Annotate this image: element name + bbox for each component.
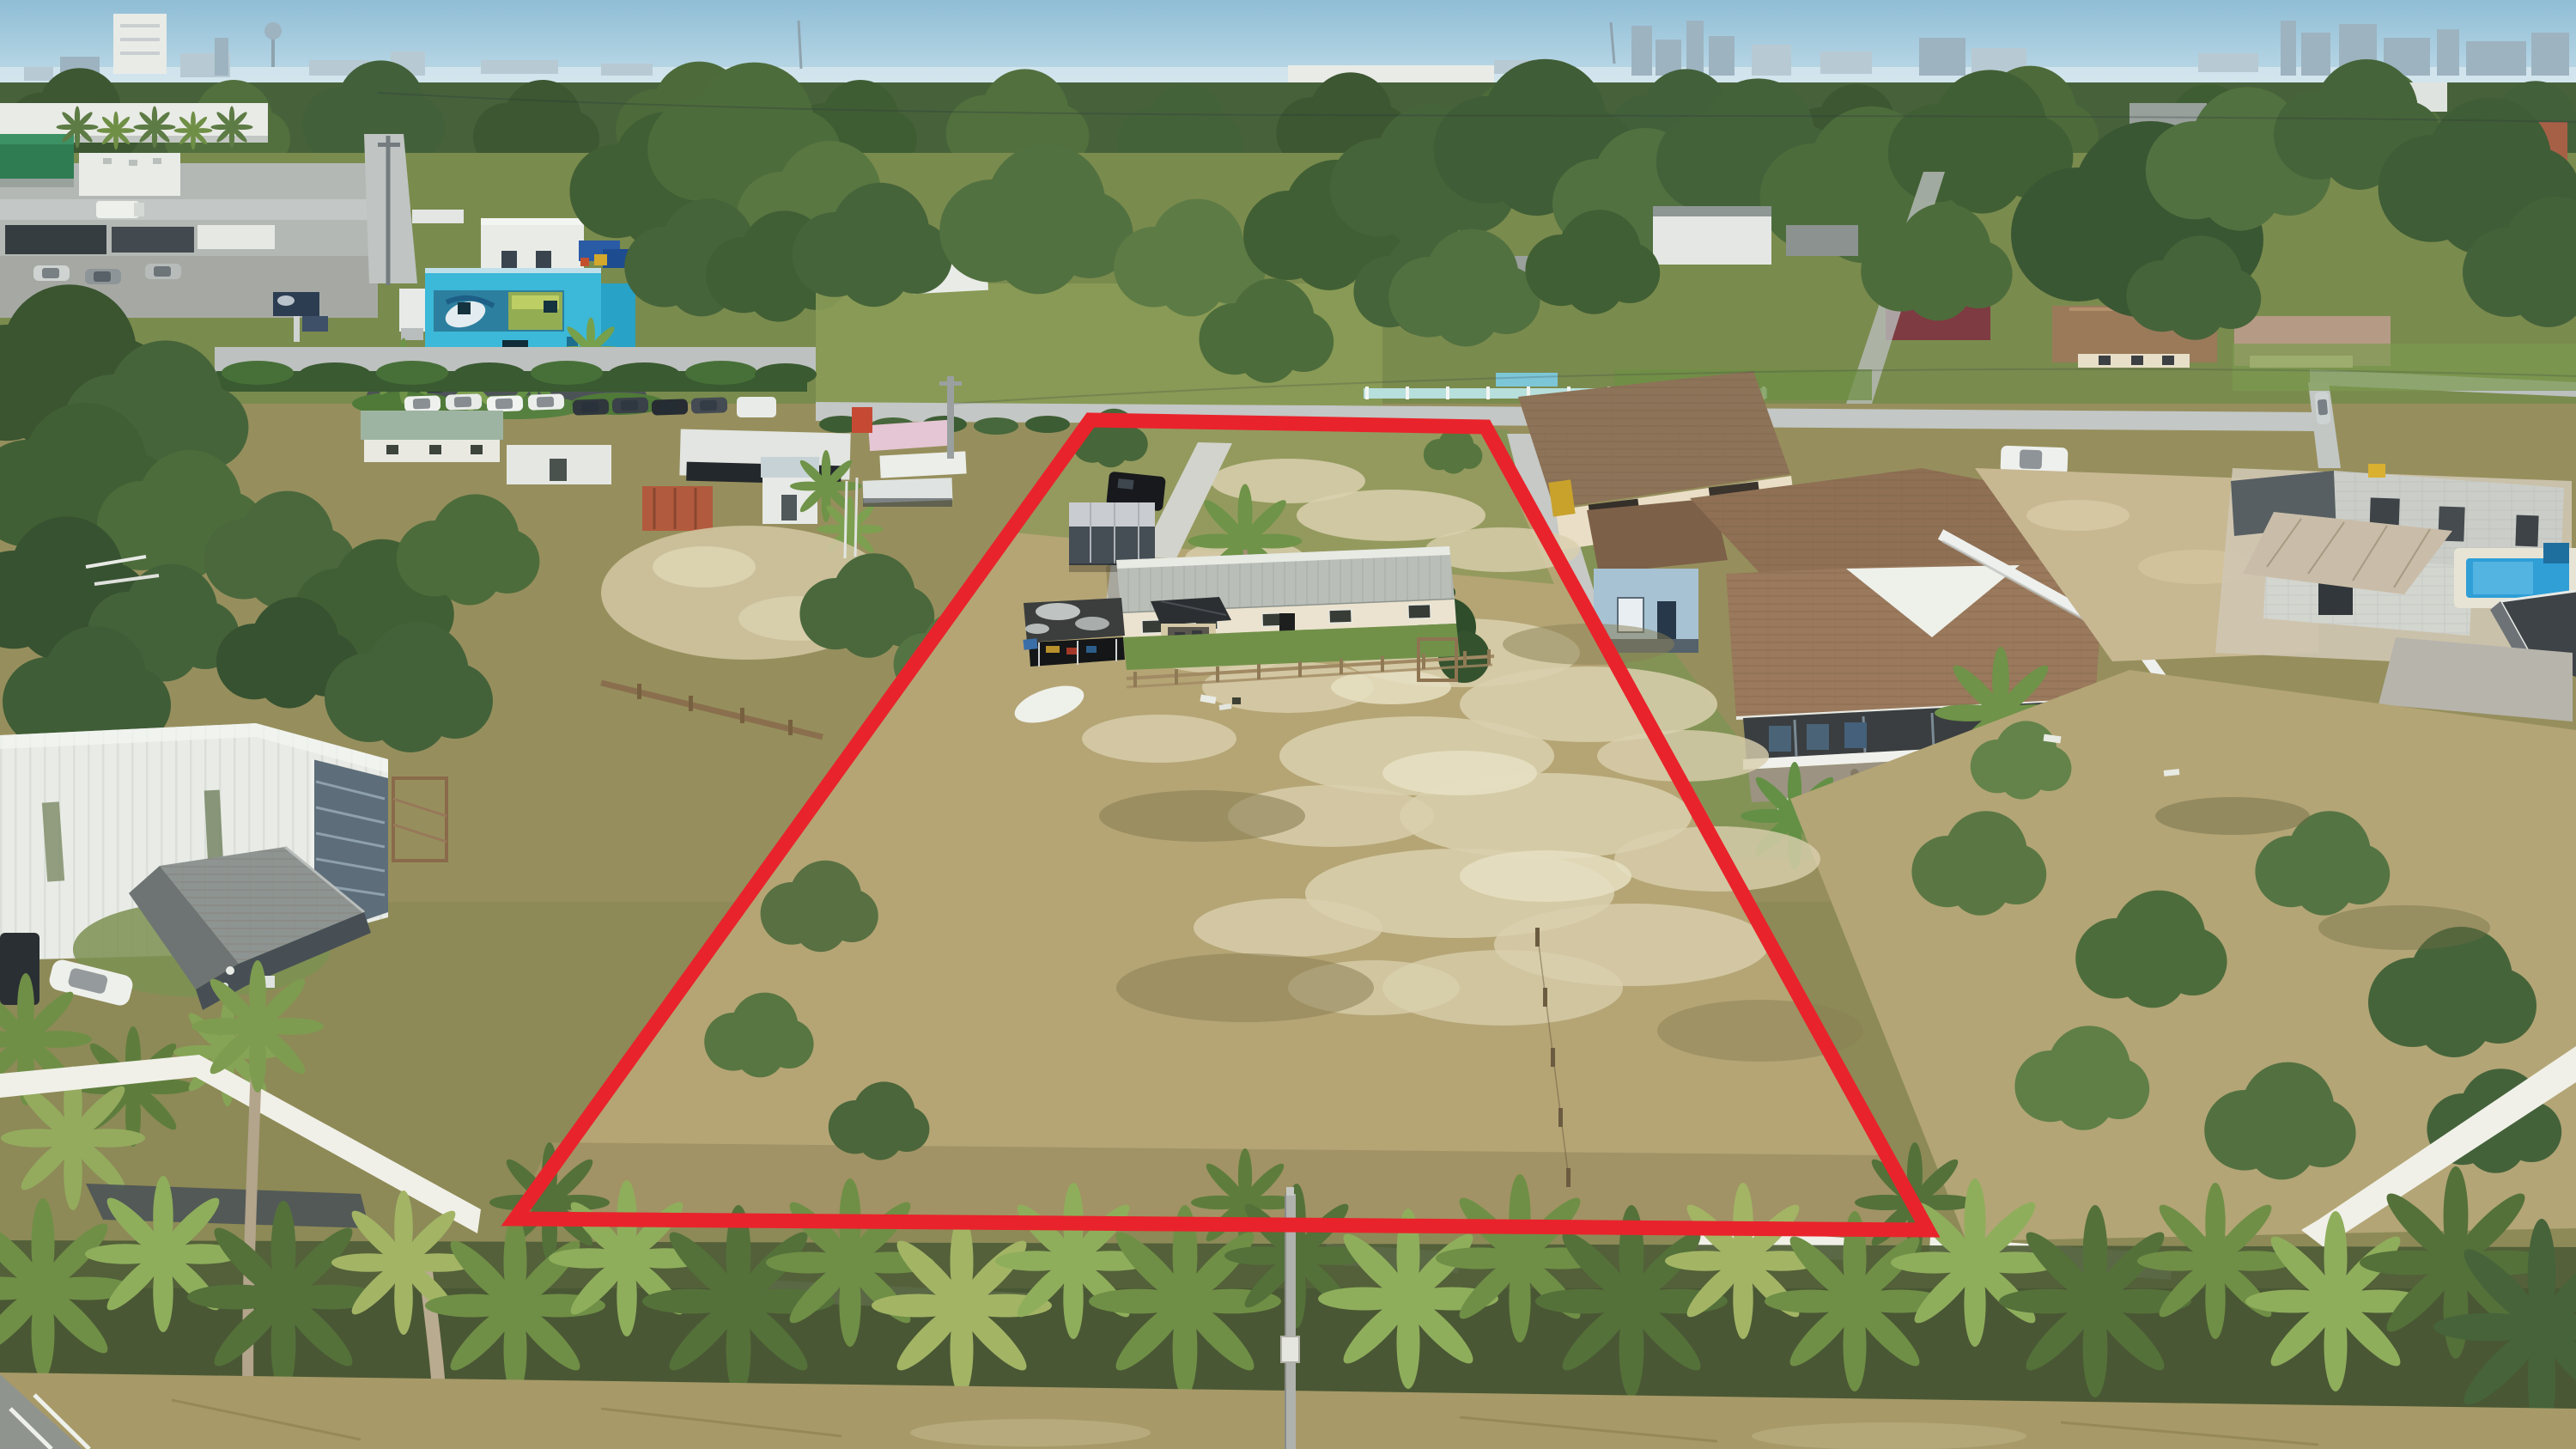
pole-lot-corner — [947, 376, 954, 459]
side-street — [0, 199, 404, 220]
box-truck — [399, 289, 425, 332]
orange-container — [642, 486, 713, 531]
tall-white-building — [113, 14, 167, 74]
yellow-machine — [1548, 479, 1575, 516]
aerial-photo — [0, 0, 2576, 1449]
red-forklift — [852, 407, 872, 433]
white-warehouse — [481, 222, 584, 270]
pole-sign — [1281, 1336, 1299, 1362]
blue-tarp — [1023, 638, 1037, 650]
yellow-forklift — [594, 254, 607, 265]
carport — [1023, 598, 1125, 667]
silver-car — [2314, 391, 2330, 424]
semi-truck — [5, 225, 106, 254]
scene-canvas — [0, 0, 2576, 1449]
neighbor-pool — [1496, 373, 1558, 387]
white-truck — [96, 201, 139, 218]
hot-tub — [2543, 543, 2569, 563]
white-two-story-house — [1653, 216, 1771, 265]
teal-roof-house — [361, 411, 503, 440]
excavator — [2368, 464, 2385, 478]
white-trailer — [197, 225, 275, 249]
